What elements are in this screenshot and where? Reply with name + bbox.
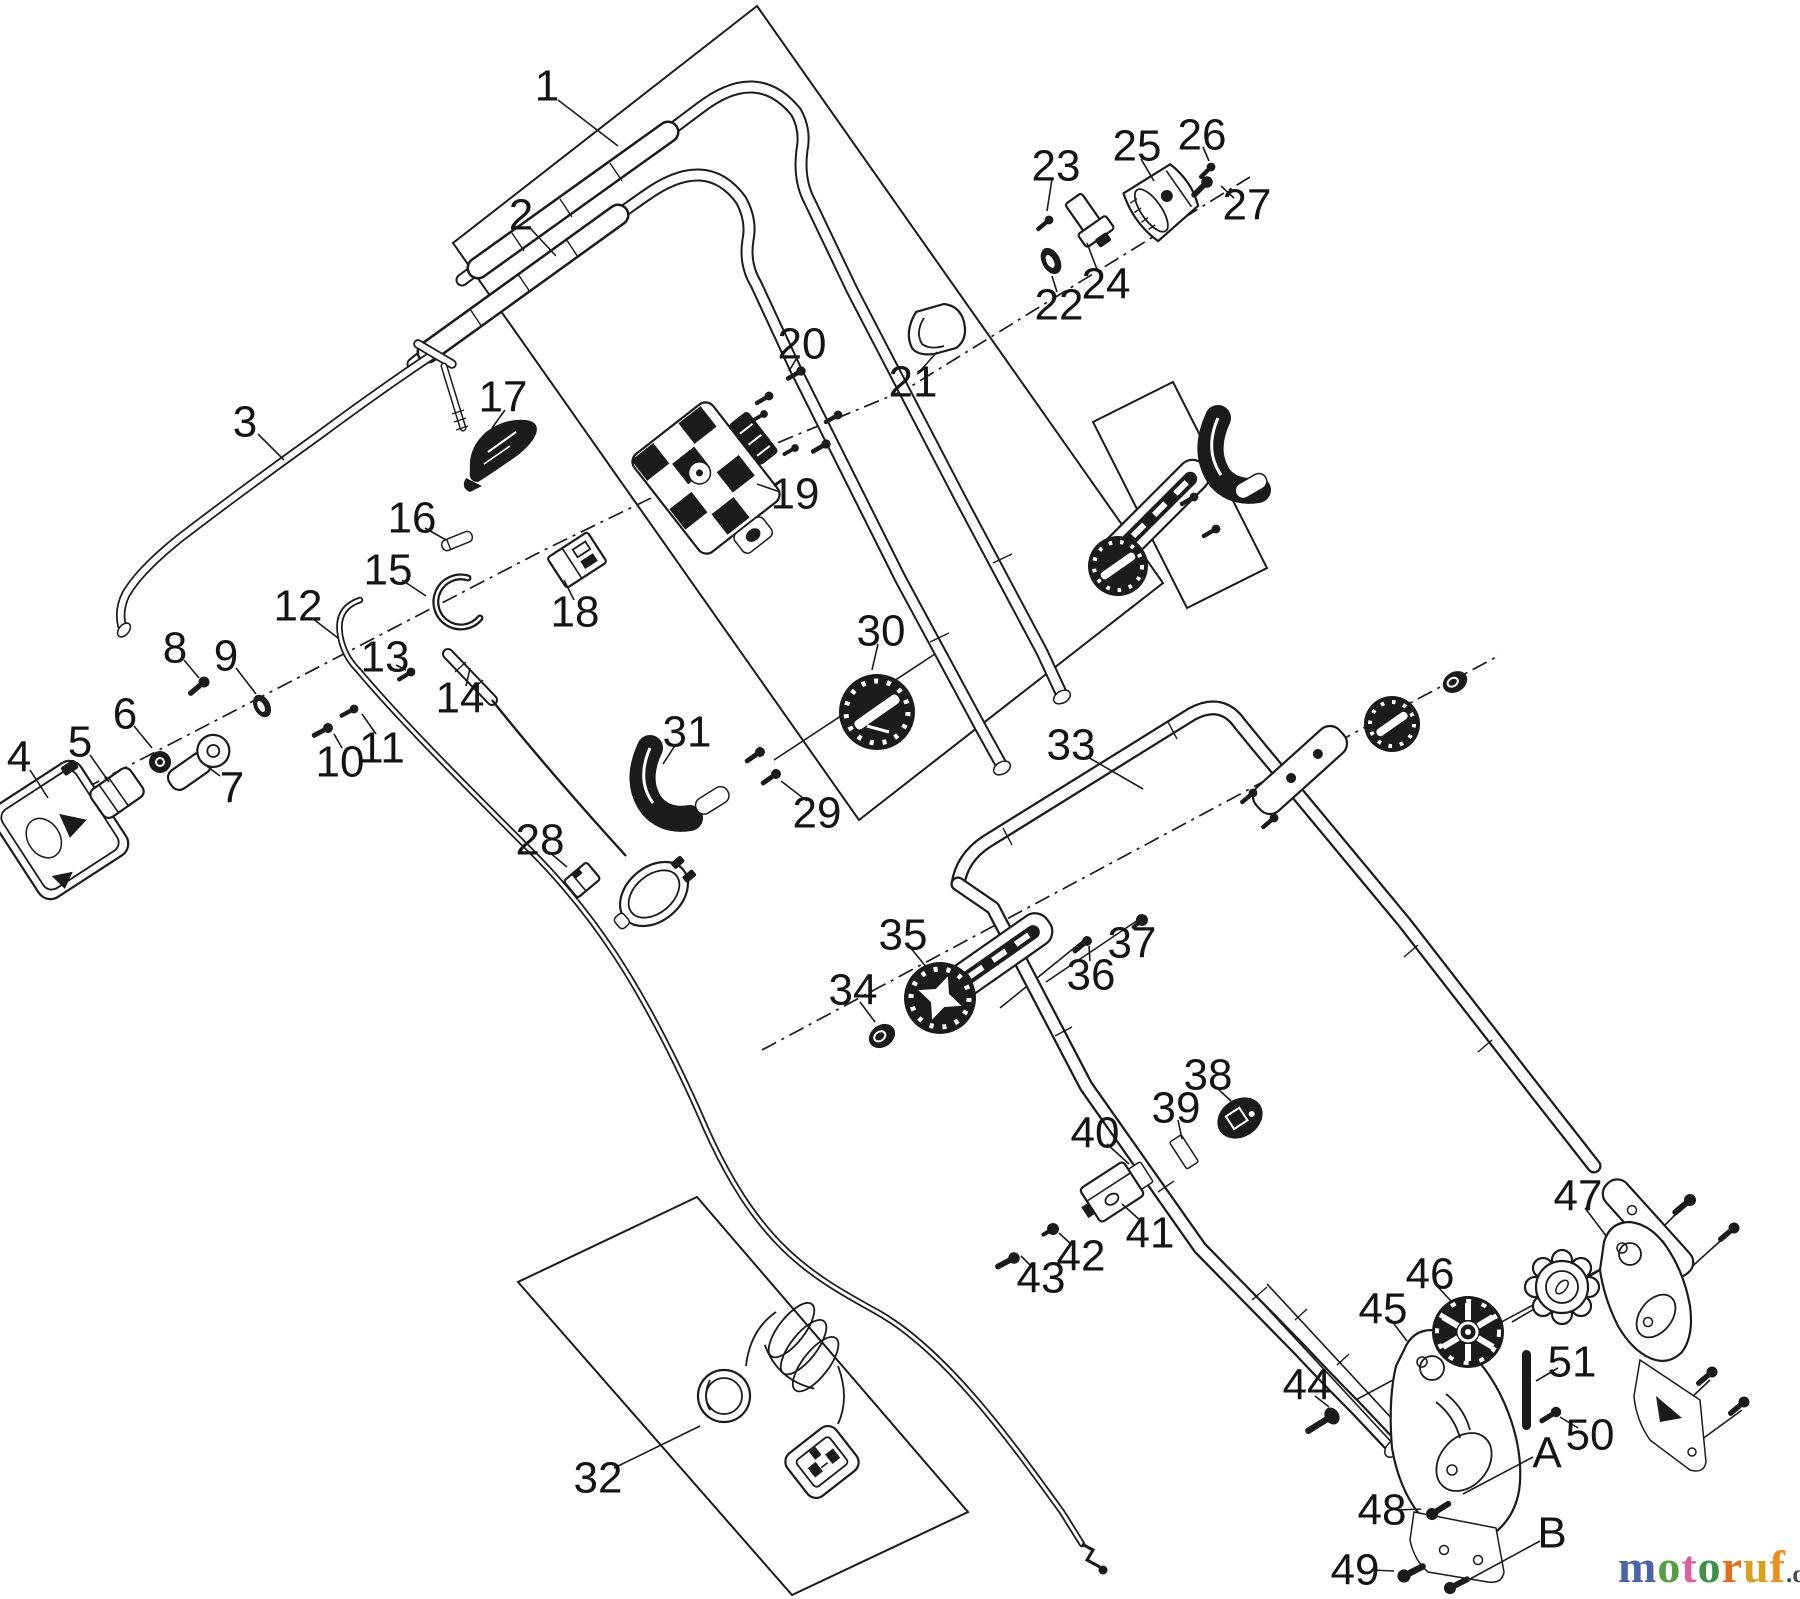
motoruf-watermark: motoruf.de [1618,1540,1800,1593]
part-label-32: 32 [574,1454,623,1503]
part-label-10: 10 [316,738,365,787]
part-label-28: 28 [516,816,565,865]
cap-34 [864,1019,900,1053]
part-label-51: 51 [1548,1338,1597,1387]
screw-right-2 [1715,1220,1742,1245]
nut-6 [149,751,171,773]
bracket-21 [909,304,965,354]
watermark-suffix: .de [1786,1561,1800,1588]
part-label-30: 30 [857,607,906,656]
watermark-letter: r [1722,1541,1743,1592]
leader-line-3 [258,434,284,460]
clamp-lever-24 [1059,189,1119,254]
part-label-48: 48 [1358,1486,1407,1535]
parts-diagram-page: 1234567891011121314151617181920212223242… [0,0,1800,1599]
part-labels: 1234567891011121314151617181920212223242… [7,62,1615,1595]
watermark-letter: o [1657,1541,1681,1592]
cap-right [1439,667,1472,698]
bracket-45 [1391,1330,1521,1582]
part-label-45: 45 [1359,1285,1408,1334]
watermark-letter: t [1681,1541,1697,1592]
part-label-7: 7 [220,764,244,813]
part-label-46: 46 [1406,1250,1455,1299]
part-label-11: 11 [359,724,405,773]
wheel-30 [839,674,915,750]
part-label-2: 2 [509,191,533,240]
part-label-13: 13 [361,633,410,682]
star-knob-47 [1525,1250,1599,1324]
part-label-15: 15 [364,546,413,595]
part-label-49: 49 [1331,1546,1380,1595]
part-label-41: 41 [1126,1209,1175,1258]
watermark-letter: m [1618,1541,1657,1592]
bolt-44 [1301,1405,1343,1440]
exploded-diagram-canvas: 1234567891011121314151617181920212223242… [0,0,1800,1599]
part-label-4: 4 [7,733,31,782]
part-label-17: 17 [479,373,528,422]
oring-22 [1036,244,1065,277]
screw-right-4 [1725,1394,1752,1419]
part-label-22: 22 [1035,281,1084,330]
part-label-8: 8 [163,624,187,673]
part-label-37: 37 [1108,919,1157,968]
screw-23 [1034,214,1055,234]
wheel-30-right [1088,536,1148,596]
part-label-14: 14 [436,674,485,723]
cord-kit-32 [698,1296,863,1502]
part-label-3: 3 [233,398,257,447]
part-label-19: 19 [771,470,820,519]
connector-18 [547,532,607,588]
part-label-44: 44 [1283,1361,1332,1410]
star-wheel-35 [904,962,976,1034]
part-label-27: 27 [1223,181,1272,230]
watermark-letter: f [1770,1541,1786,1592]
part-label-A: A [1532,1429,1562,1478]
part-label-6: 6 [113,690,137,739]
watermark-letter: o [1698,1541,1722,1592]
part-label-31: 31 [663,708,712,757]
part-label-40: 40 [1071,1109,1120,1158]
part-label-47: 47 [1554,1172,1603,1221]
leader-line-1 [558,100,618,146]
part-label-34: 34 [829,966,878,1015]
part-label-29: 29 [793,789,842,838]
part-label-1: 1 [535,62,559,111]
part-label-21: 21 [889,358,938,407]
part-label-33: 33 [1047,721,1096,770]
power-plug [600,844,706,945]
part-label-18: 18 [551,588,600,637]
watermark-word: motoruf [1618,1541,1786,1592]
clamp-body-25 [1120,160,1205,244]
watermark-letter: u [1743,1541,1770,1592]
part-label-5: 5 [68,718,92,767]
leader-line-5 [90,755,109,782]
part-label-43: 43 [1017,1254,1066,1303]
pin-16 [440,530,474,552]
screws-29 [742,745,782,788]
part-label-25: 25 [1113,122,1162,171]
part-label-16: 16 [388,494,437,543]
part-label-9: 9 [214,632,238,681]
impeller-knob-46 [1432,1296,1504,1368]
screw-50 [1537,1405,1563,1427]
part-label-26: 26 [1178,111,1227,160]
spacer-39 [1169,1135,1198,1169]
part-label-50: 50 [1566,1411,1615,1460]
grip-31-left [642,748,732,819]
screw-right-1 [1669,1191,1698,1218]
lever-17 [464,420,537,492]
part-label-39: 39 [1152,1084,1201,1133]
screw-right-3 [1693,1364,1720,1389]
part-label-23: 23 [1032,142,1081,191]
dial-knob-right [1364,696,1420,752]
screw-11 [338,703,360,720]
part-label-35: 35 [879,911,928,960]
leader-line-32 [614,1426,700,1468]
part-label-20: 20 [778,320,827,369]
leader-line-9 [236,668,256,694]
part-label-24: 24 [1082,260,1131,309]
part-label-B: B [1537,1509,1566,1558]
ring-9 [249,692,274,721]
part-label-12: 12 [274,582,323,631]
pin-51 [1522,1350,1531,1430]
